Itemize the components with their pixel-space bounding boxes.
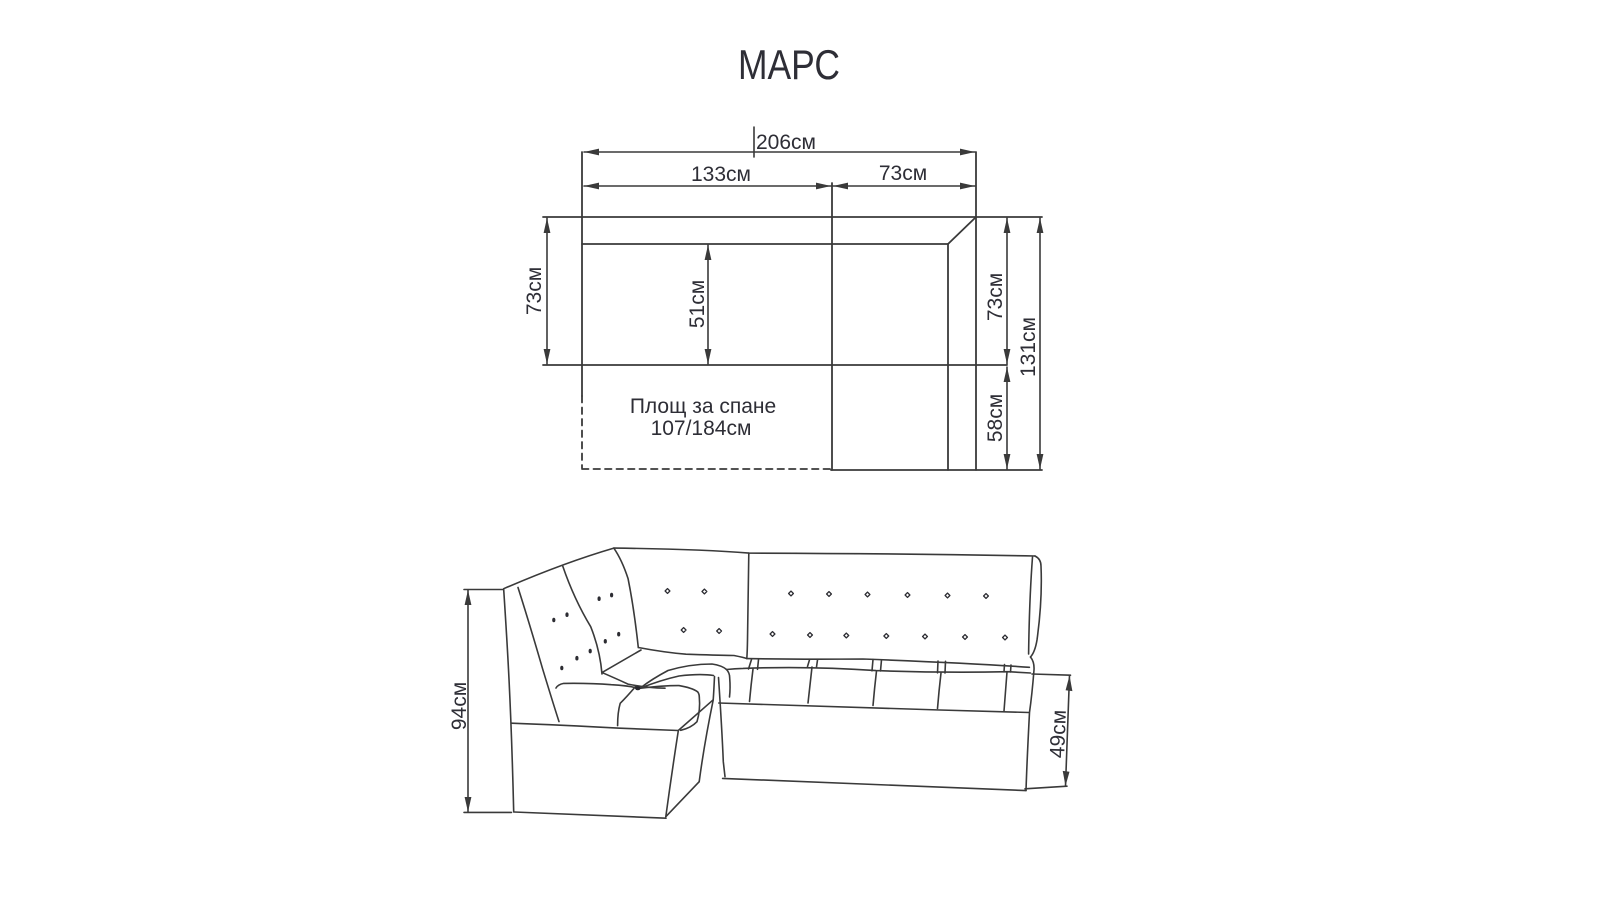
- svg-text:73см: 73см: [879, 162, 927, 185]
- svg-text:107/184см: 107/184см: [651, 417, 752, 440]
- svg-text:206см: 206см: [756, 131, 816, 154]
- svg-text:51см: 51см: [686, 280, 709, 328]
- svg-text:49см: 49см: [1046, 709, 1071, 758]
- svg-text:131см: 131см: [1017, 317, 1040, 377]
- svg-text:58см: 58см: [984, 394, 1007, 442]
- svg-text:133см: 133см: [691, 163, 751, 186]
- svg-text:МАРС: МАРС: [738, 41, 840, 88]
- svg-text:Площ за спане: Площ за спане: [630, 395, 776, 418]
- svg-text:73см: 73см: [984, 273, 1007, 321]
- svg-text:73см: 73см: [523, 267, 546, 315]
- svg-text:94см: 94см: [448, 682, 471, 730]
